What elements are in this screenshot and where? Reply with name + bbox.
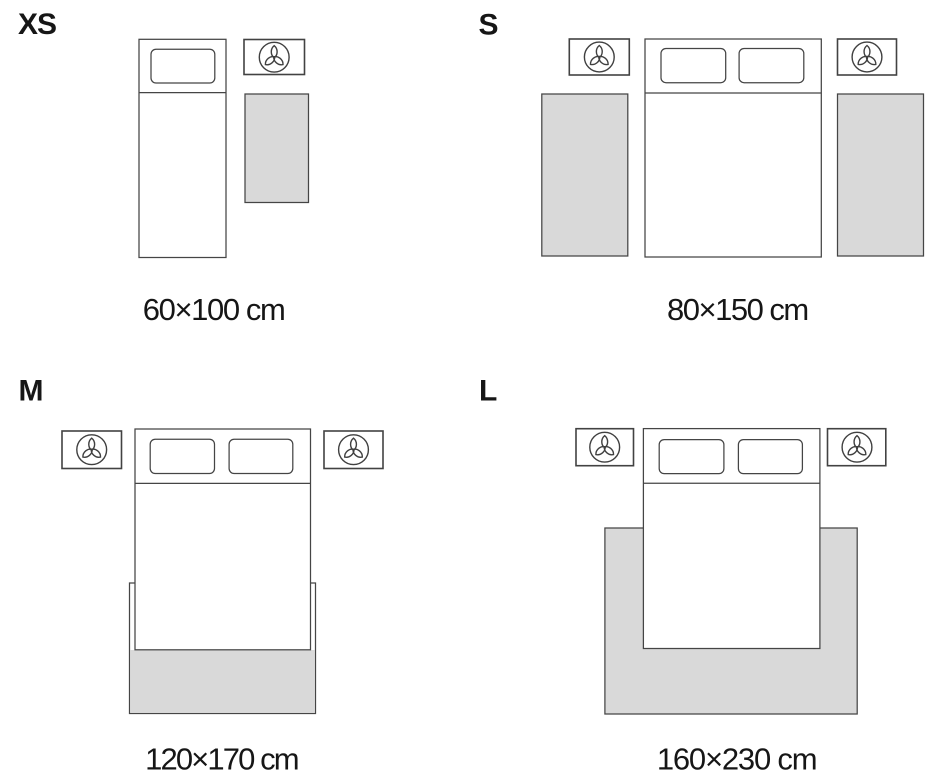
svg-text:120×170 cm: 120×170 cm — [145, 741, 298, 776]
svg-text:XS: XS — [18, 8, 56, 41]
svg-text:160×230 cm: 160×230 cm — [657, 741, 816, 776]
svg-text:S: S — [479, 9, 498, 42]
svg-text:L: L — [479, 375, 497, 408]
svg-text:60×100 cm: 60×100 cm — [143, 292, 285, 327]
svg-text:80×150 cm: 80×150 cm — [667, 292, 808, 327]
svg-text:M: M — [19, 375, 43, 408]
